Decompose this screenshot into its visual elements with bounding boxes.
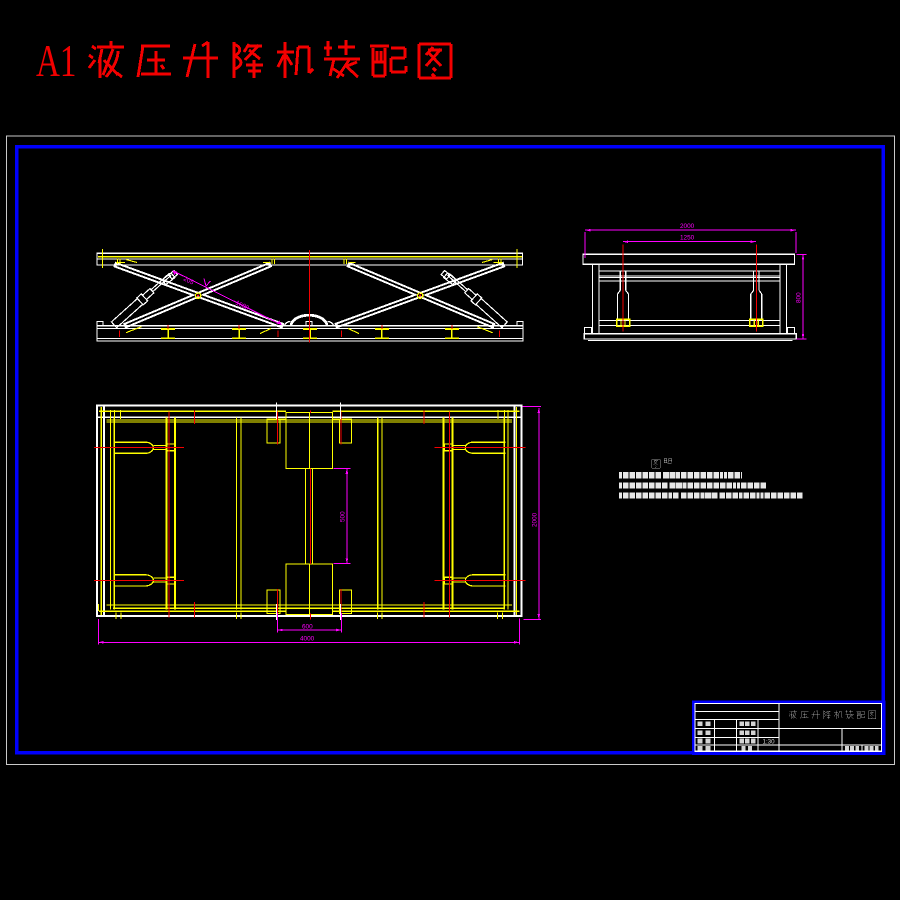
svg-text:1250: 1250 bbox=[680, 235, 695, 242]
svg-text:4000: 4000 bbox=[300, 636, 315, 643]
svg-text:500: 500 bbox=[340, 511, 347, 522]
svg-text:600: 600 bbox=[302, 623, 313, 630]
svg-text:800: 800 bbox=[796, 292, 803, 303]
svg-text:2000: 2000 bbox=[532, 512, 539, 527]
svg-text:A1: A1 bbox=[36, 35, 76, 87]
svg-text:1:30: 1:30 bbox=[763, 738, 776, 745]
svg-text:205: 205 bbox=[182, 276, 195, 287]
svg-text:2000: 2000 bbox=[680, 223, 695, 230]
